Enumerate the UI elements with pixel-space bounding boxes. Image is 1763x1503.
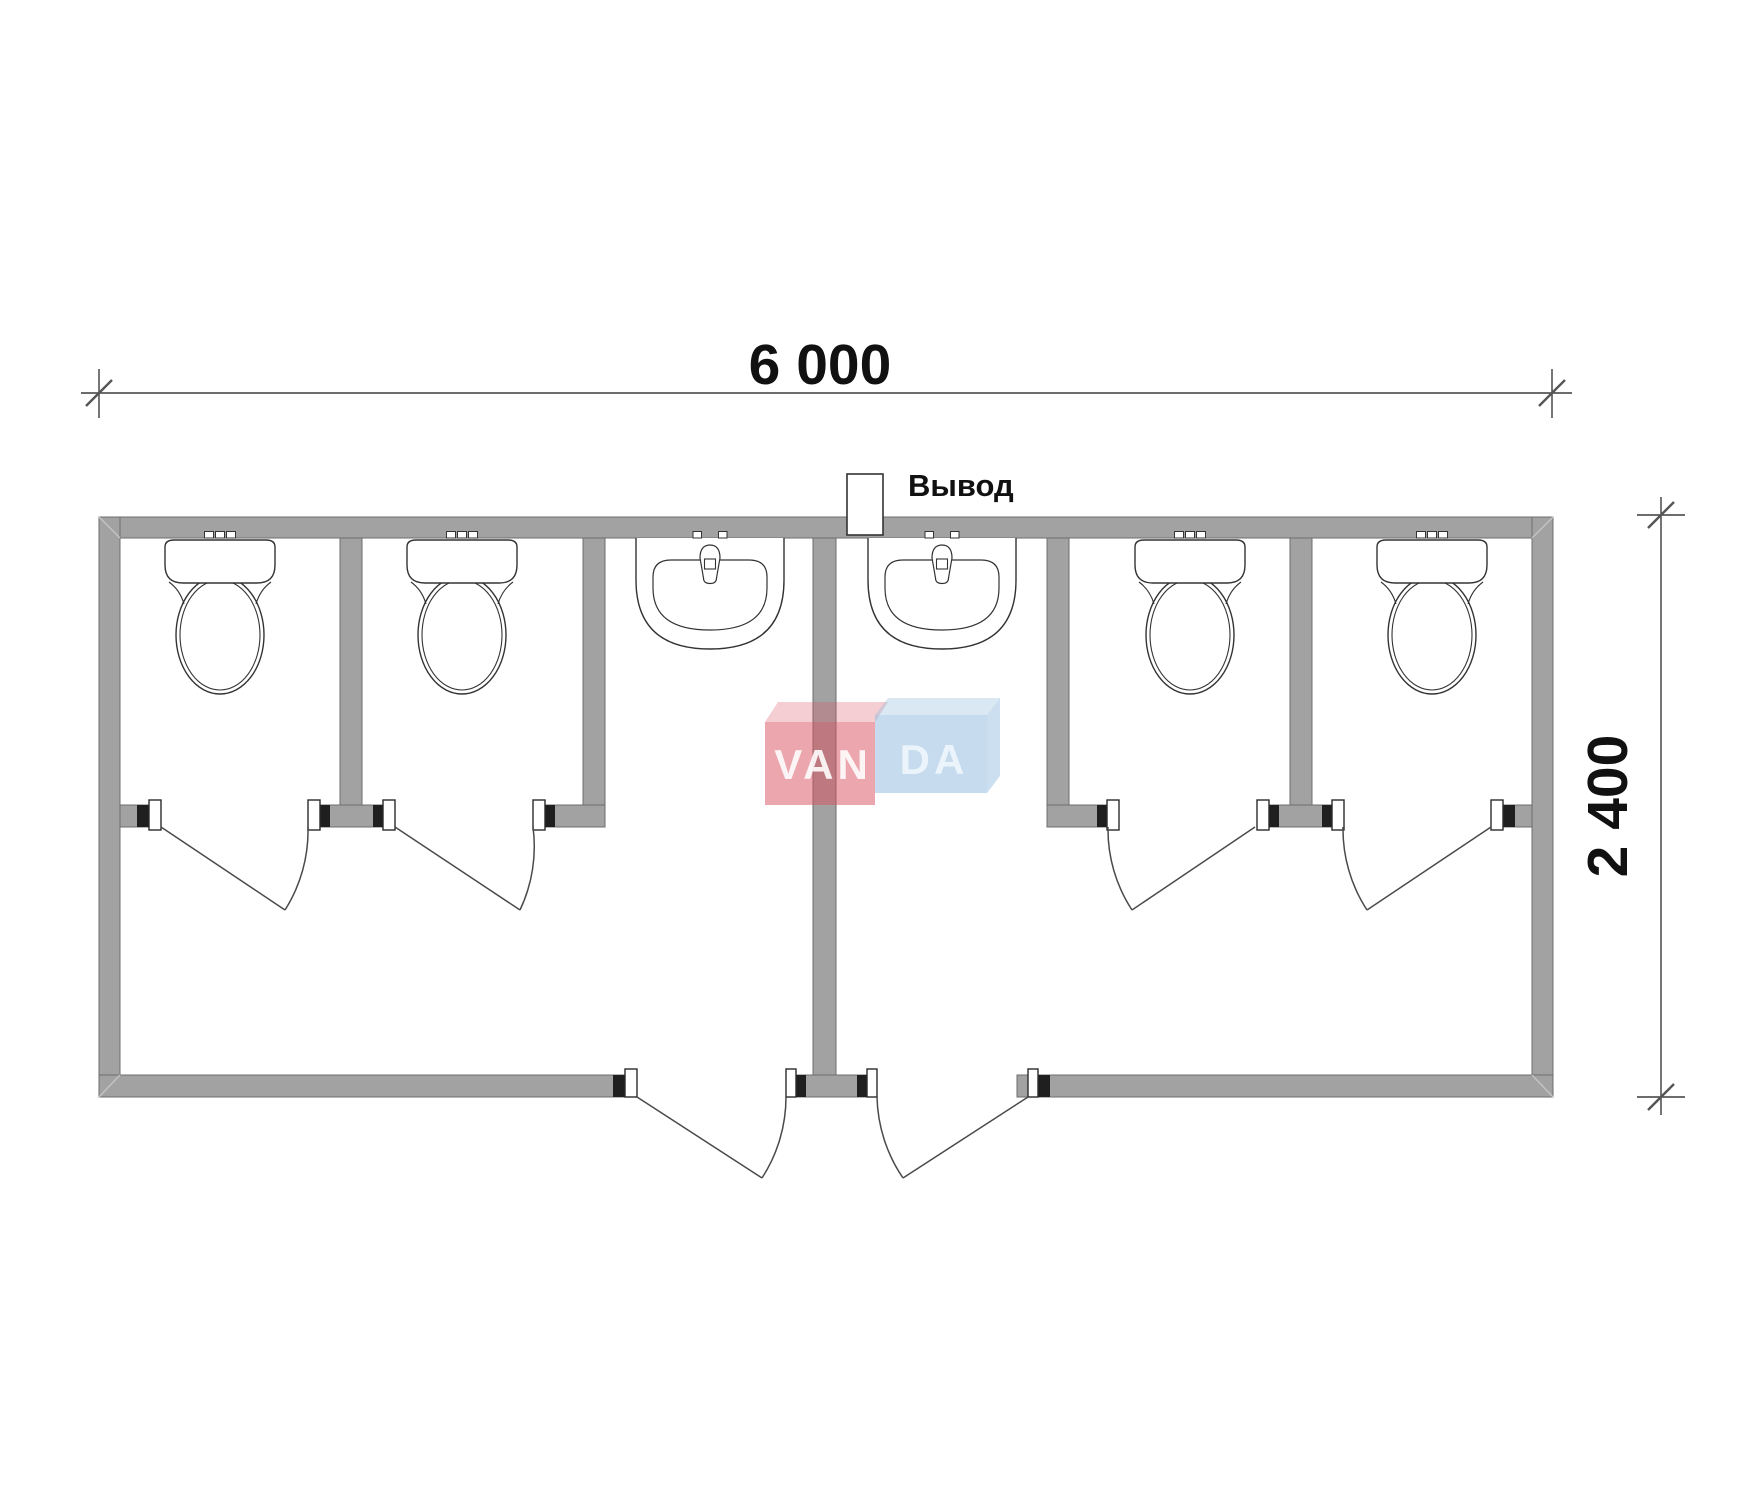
wall-segment <box>99 517 1553 538</box>
door-jamb <box>533 800 545 830</box>
door-jamb <box>1028 1069 1038 1097</box>
wall-segment <box>99 1075 637 1097</box>
outlet-box <box>847 474 883 535</box>
wall-segment <box>1532 517 1553 1097</box>
door-stall-4 <box>1343 827 1491 910</box>
wall-cap <box>613 1075 625 1097</box>
wall-cap <box>1269 805 1279 827</box>
outlet-label: Вывод <box>908 468 1014 503</box>
door-stall-2 <box>395 827 534 910</box>
logo-blue-top-face <box>875 698 1000 715</box>
door-jamb <box>786 1069 796 1097</box>
wall-cap <box>1097 805 1107 827</box>
width-dimension-label: 6 000 <box>749 333 892 397</box>
floor-plan-drawing: Вывод 6 000 2 400 VAN <box>0 0 1763 1503</box>
wall-cap <box>373 805 383 827</box>
door-jamb <box>1491 800 1503 830</box>
wall-cap <box>320 805 330 827</box>
wall-segment <box>1290 538 1312 827</box>
toilet-icon <box>1135 532 1245 695</box>
door-entry-right <box>877 1097 1028 1178</box>
vanda-watermark-logo: VAN DA <box>765 698 1000 805</box>
wall-cap <box>857 1075 867 1097</box>
washbasin-icon <box>868 532 1016 650</box>
door-stall-3 <box>1108 827 1255 910</box>
door-jamb <box>383 800 395 830</box>
toilet-icon <box>1377 532 1487 695</box>
wall-cap <box>137 805 149 827</box>
wall-cap <box>1503 805 1515 827</box>
door-jamb <box>1107 800 1119 830</box>
wall-cap <box>1322 805 1332 827</box>
wall-segment <box>99 517 120 1097</box>
washbasin-icon <box>636 532 784 650</box>
wall-segment <box>813 538 836 1075</box>
wall-cap <box>796 1075 806 1097</box>
wall-segment <box>1047 538 1069 827</box>
toilet-icon <box>407 532 517 695</box>
dimension-height: 2 400 <box>1576 497 1685 1115</box>
floor-plan-canvas: Вывод 6 000 2 400 VAN <box>0 0 1763 1503</box>
door-stall-1 <box>161 827 308 910</box>
door-jamb <box>1332 800 1344 830</box>
wall-segment <box>340 538 362 827</box>
door-jamb <box>149 800 161 830</box>
wall-segment <box>1017 1075 1553 1097</box>
logo-red-top-face <box>765 702 888 722</box>
toilet-icon <box>165 532 275 695</box>
door-jamb <box>308 800 320 830</box>
door-jamb <box>625 1069 637 1097</box>
door-jamb <box>1257 800 1269 830</box>
dimension-width: 6 000 <box>81 333 1572 418</box>
wall-segment <box>583 538 605 827</box>
wall-cap <box>545 805 555 827</box>
height-dimension-label: 2 400 <box>1576 735 1640 878</box>
wall-cap <box>1038 1075 1050 1097</box>
door-entry-left <box>637 1097 786 1178</box>
logo-text-da: DA <box>900 736 969 783</box>
door-jamb <box>867 1069 877 1097</box>
logo-text-van: VAN <box>774 741 872 788</box>
